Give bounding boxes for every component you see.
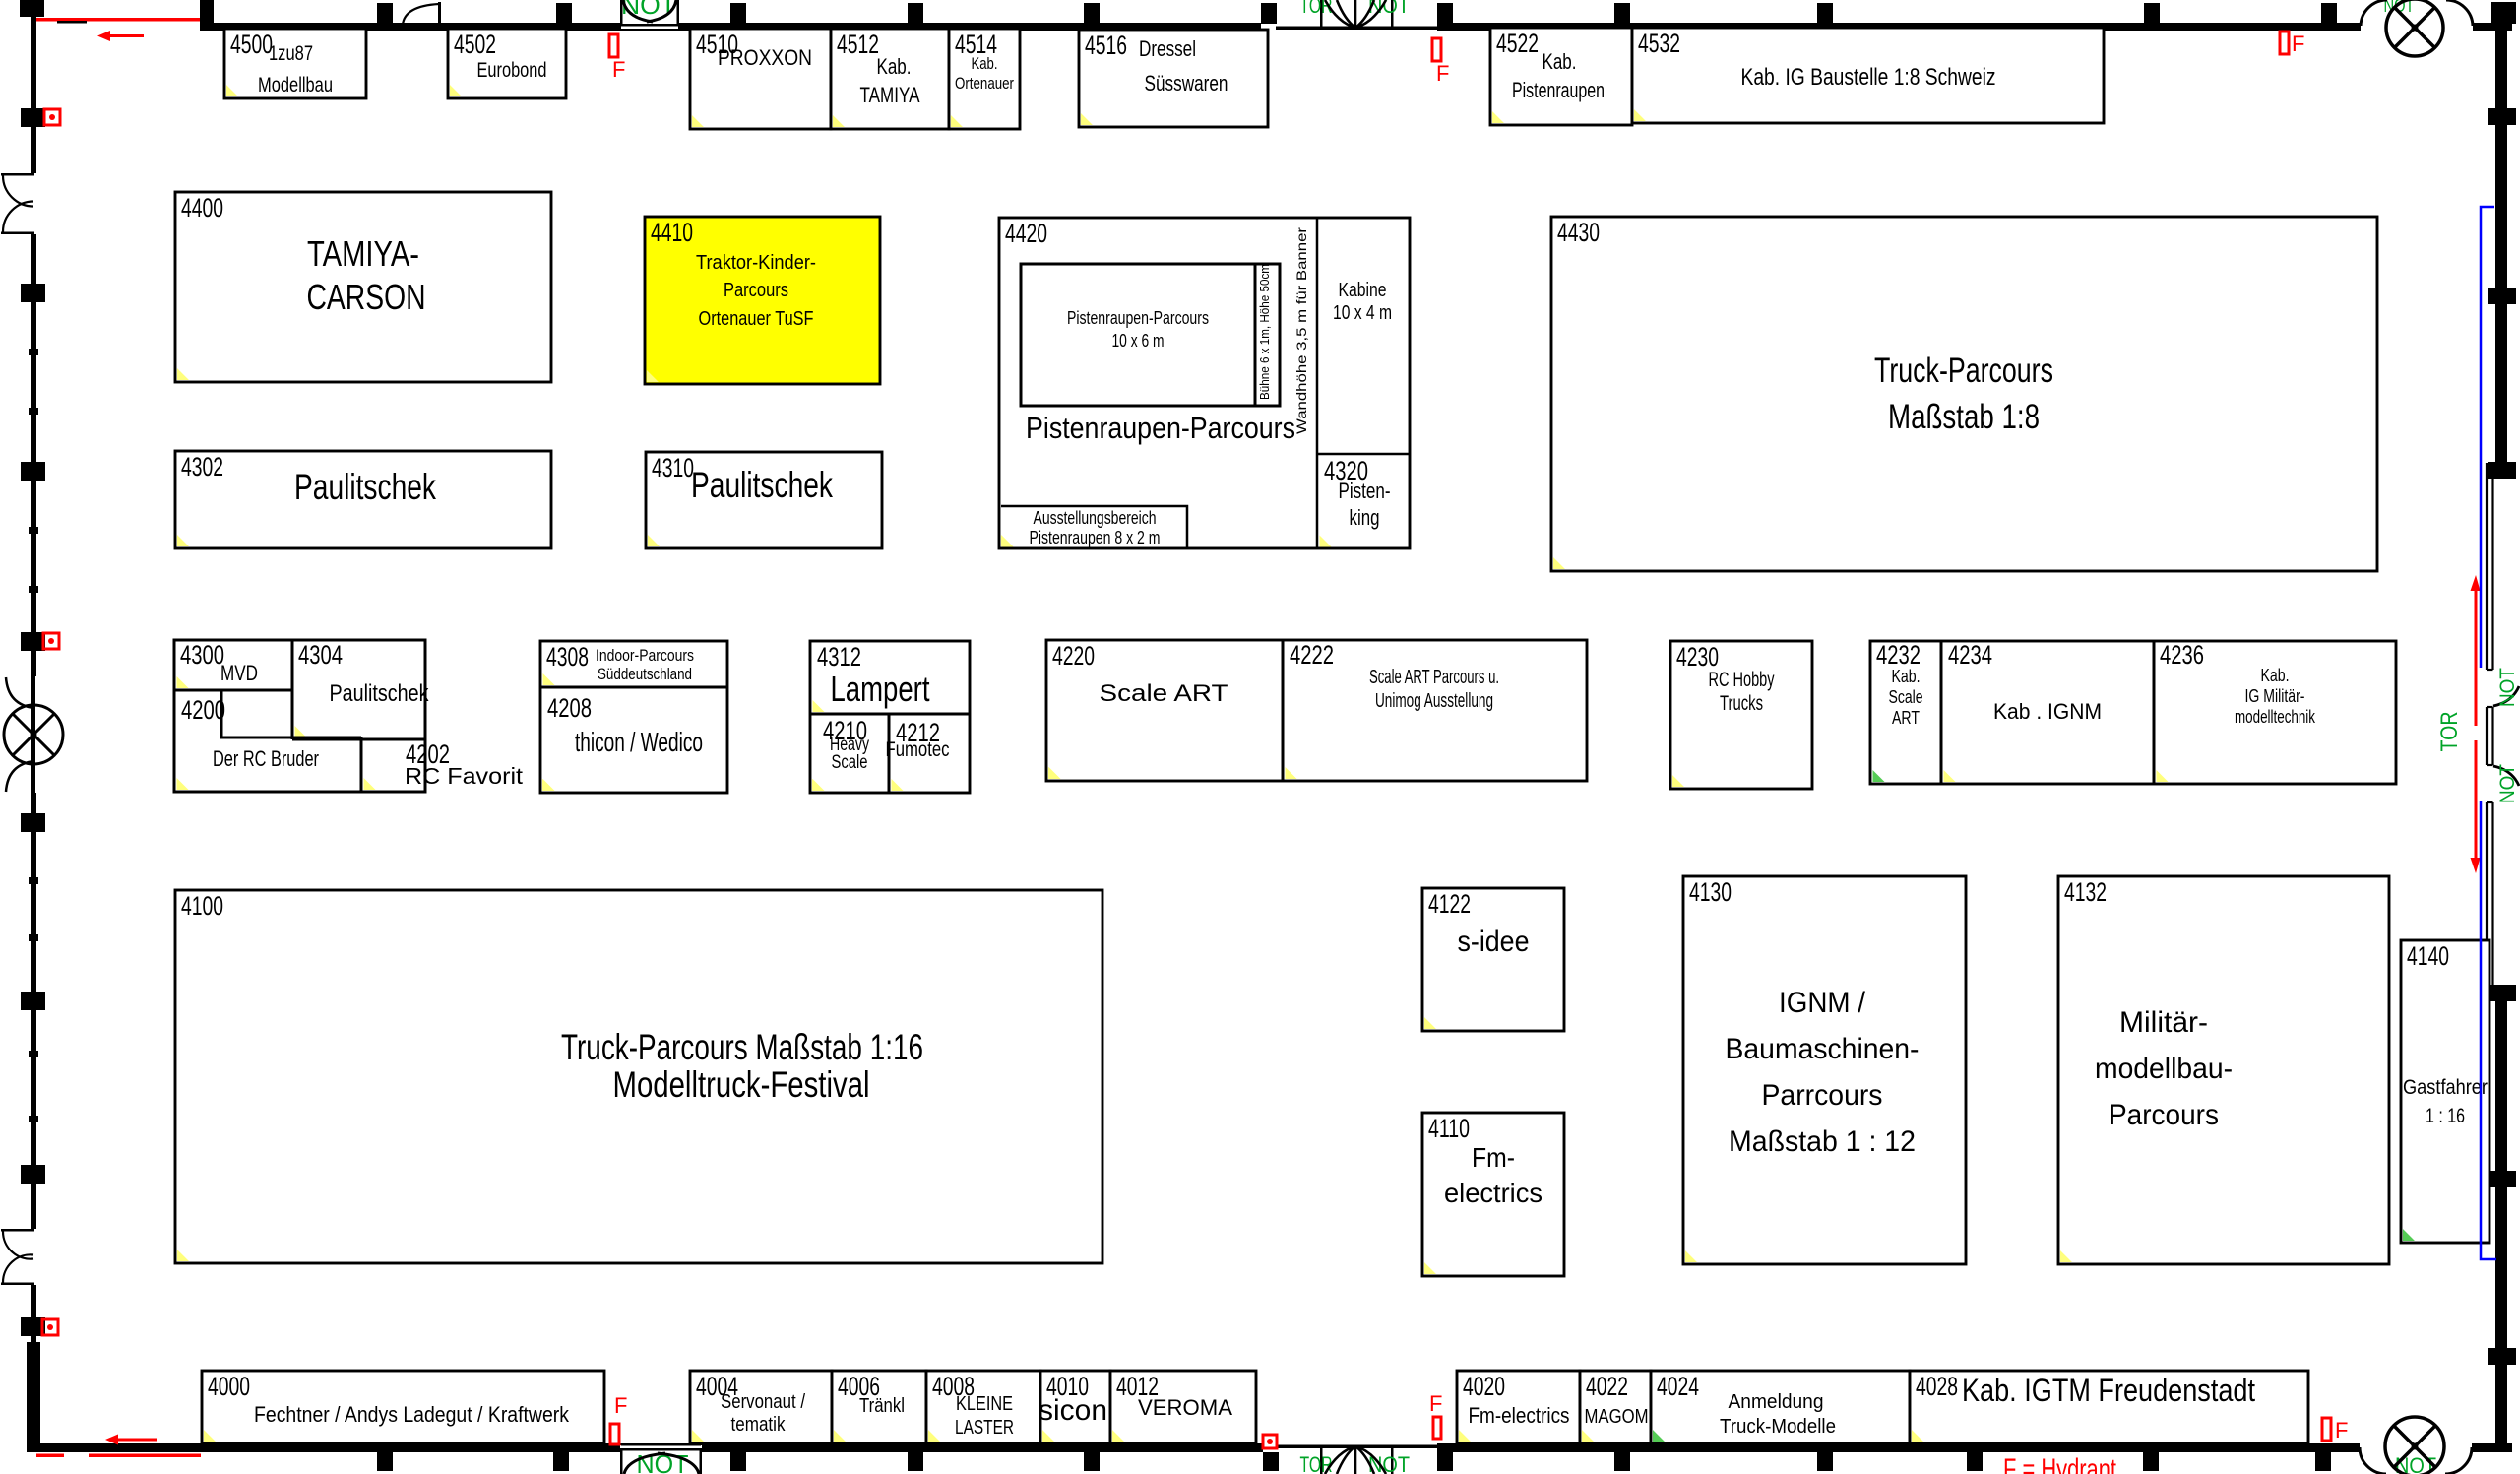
svg-text:4232: 4232 <box>1876 640 1921 670</box>
svg-text:IGNM /: IGNM / <box>1779 987 1866 1019</box>
svg-text:LASTER: LASTER <box>955 1417 1014 1439</box>
svg-text:4522: 4522 <box>1496 29 1539 58</box>
svg-text:king: king <box>1350 505 1380 530</box>
svg-text:4430: 4430 <box>1557 218 1600 247</box>
svg-text:4140: 4140 <box>2407 941 2449 971</box>
svg-text:4532: 4532 <box>1638 29 1680 58</box>
svg-text:Dressel: Dressel <box>1139 36 1196 61</box>
svg-text:Kab.: Kab. <box>877 54 912 79</box>
svg-text:Modellbau: Modellbau <box>258 74 333 96</box>
svg-text:Ortenauer TuSF: Ortenauer TuSF <box>699 308 814 330</box>
svg-text:4308: 4308 <box>546 642 589 672</box>
svg-text:4300: 4300 <box>180 640 224 670</box>
svg-text:Eurobond: Eurobond <box>477 59 547 82</box>
svg-text:4028: 4028 <box>1916 1372 1958 1401</box>
svg-text:Tränkl: Tränkl <box>859 1395 905 1417</box>
svg-text:4220: 4220 <box>1052 641 1095 671</box>
svg-text:4236: 4236 <box>2160 640 2204 670</box>
svg-text:4100: 4100 <box>181 891 223 921</box>
svg-text:Süsswaren: Süsswaren <box>1145 71 1228 96</box>
svg-text:4022: 4022 <box>1586 1372 1628 1401</box>
svg-text:NOT: NOT <box>2496 668 2519 707</box>
svg-text:PROXXON: PROXXON <box>718 45 812 70</box>
svg-text:Maßstab 1:8: Maßstab 1:8 <box>1888 398 2040 436</box>
svg-text:Pistenraupen: Pistenraupen <box>1512 78 1605 102</box>
svg-text:Scale: Scale <box>1889 687 1923 707</box>
svg-text:tematik: tematik <box>731 1414 787 1436</box>
svg-text:Kab.: Kab. <box>2261 666 2290 685</box>
svg-text:4304: 4304 <box>298 640 343 670</box>
svg-text:NOT: NOT <box>2496 764 2519 803</box>
svg-text:Parrcours: Parrcours <box>1762 1079 1883 1112</box>
svg-text:Fumotec: Fumotec <box>886 738 950 761</box>
svg-text:4512: 4512 <box>837 30 879 59</box>
svg-text:Paulitschek: Paulitschek <box>691 465 833 505</box>
svg-text:Militär-: Militär- <box>2119 1006 2208 1039</box>
svg-text:4502: 4502 <box>454 30 496 59</box>
svg-text:10 x 6 m: 10 x 6 m <box>1112 331 1165 351</box>
svg-text:1zu87: 1zu87 <box>269 42 313 65</box>
svg-text:MAGOM: MAGOM <box>1585 1406 1649 1428</box>
svg-text:sicon: sicon <box>1039 1394 1107 1427</box>
svg-text:Kab.: Kab. <box>972 54 998 73</box>
svg-text:F: F <box>1436 61 1449 86</box>
svg-text:Kab. IGTM Freudenstadt: Kab. IGTM Freudenstadt <box>1962 1373 2255 1408</box>
svg-text:4000: 4000 <box>208 1372 250 1401</box>
svg-text:Anmeldung: Anmeldung <box>1729 1391 1824 1413</box>
svg-text:Ortenauer: Ortenauer <box>955 74 1014 93</box>
svg-text:Bühne 6 x 1m, Höhe 50cm: Bühne 6 x 1m, Höhe 50cm <box>1257 264 1272 400</box>
svg-text:TAMIYA-: TAMIYA- <box>307 233 419 274</box>
svg-text:4410: 4410 <box>651 218 693 247</box>
svg-text:F: F <box>2292 32 2304 56</box>
svg-text:Trucks: Trucks <box>1720 692 1763 715</box>
svg-text:Pisten-: Pisten- <box>1339 479 1391 503</box>
svg-text:Kab. IG Baustelle 1:8 Schweiz: Kab. IG Baustelle 1:8 Schweiz <box>1741 64 1996 91</box>
svg-text:Truck-Modelle: Truck-Modelle <box>1720 1416 1836 1438</box>
svg-text:4208: 4208 <box>547 693 592 723</box>
svg-text:Kabine: Kabine <box>1339 280 1387 301</box>
svg-text:Pistenraupen-Parcours: Pistenraupen-Parcours <box>1067 308 1209 328</box>
svg-text:4200: 4200 <box>181 695 225 725</box>
svg-text:4110: 4110 <box>1428 1114 1470 1143</box>
svg-text:Fm-: Fm- <box>1472 1142 1515 1173</box>
svg-text:4310: 4310 <box>652 453 694 482</box>
svg-text:CARSON: CARSON <box>307 277 426 317</box>
svg-text:F: F <box>614 1393 627 1418</box>
svg-text:F: F <box>612 57 625 82</box>
svg-text:4122: 4122 <box>1428 889 1471 919</box>
svg-text:Truck-Parcours: Truck-Parcours <box>1874 352 2053 390</box>
svg-text:Scale ART Parcours u.: Scale ART Parcours u. <box>1369 667 1499 688</box>
svg-text:4130: 4130 <box>1689 877 1732 907</box>
svg-text:TOR: TOR <box>2436 712 2463 752</box>
svg-text:Scale ART: Scale ART <box>1100 680 1228 707</box>
svg-text:Truck-Parcours Maßstab 1:16: Truck-Parcours Maßstab 1:16 <box>561 1027 923 1067</box>
svg-text:modelltechnik: modelltechnik <box>2235 707 2316 727</box>
svg-text:NOT: NOT <box>1368 1452 1410 1474</box>
svg-text:Fechtner / Andys Ladegut / Kra: Fechtner / Andys Ladegut / Kraftwerk <box>254 1402 570 1427</box>
svg-text:MVD: MVD <box>220 661 258 685</box>
svg-text:4024: 4024 <box>1657 1372 1699 1401</box>
svg-text:Baumaschinen-: Baumaschinen- <box>1726 1033 1920 1065</box>
svg-text:4420: 4420 <box>1005 219 1047 248</box>
svg-text:Unimog Ausstellung: Unimog Ausstellung <box>1375 690 1493 712</box>
svg-text:Maßstab 1 : 12: Maßstab 1 : 12 <box>1729 1125 1916 1158</box>
svg-text:RC Favorit: RC Favorit <box>405 763 524 789</box>
svg-text:Kab.: Kab. <box>1543 49 1577 74</box>
svg-text:4132: 4132 <box>2064 877 2107 907</box>
svg-text:Traktor-Kinder-: Traktor-Kinder- <box>696 252 816 274</box>
svg-text:Wandhöhe 3,5 m für Banner: Wandhöhe 3,5 m für Banner <box>1294 226 1309 434</box>
svg-text:F: F <box>2335 1418 2348 1442</box>
svg-text:4234: 4234 <box>1948 640 1992 670</box>
svg-text:Kab.: Kab. <box>1892 667 1921 686</box>
svg-text:IG Militär-: IG Militär- <box>2245 686 2305 706</box>
svg-text:4302: 4302 <box>181 452 223 481</box>
svg-text:4312: 4312 <box>817 642 861 672</box>
svg-text:4020: 4020 <box>1463 1372 1505 1401</box>
svg-text:4400: 4400 <box>181 193 223 223</box>
svg-text:1 : 16: 1 : 16 <box>2425 1105 2465 1127</box>
svg-text:Süddeutschland: Süddeutschland <box>598 665 692 683</box>
svg-text:ART: ART <box>1892 708 1920 728</box>
svg-text:Der RC Bruder: Der RC Bruder <box>213 746 319 771</box>
svg-text:Ausstellungsbereich: Ausstellungsbereich <box>1034 508 1157 528</box>
svg-text:Indoor-Parcours: Indoor-Parcours <box>596 646 694 665</box>
svg-text:Gastfahrer: Gastfahrer <box>2403 1076 2488 1099</box>
svg-text:thicon / Wedico: thicon / Wedico <box>575 727 703 757</box>
svg-text:Servonaut /: Servonaut / <box>721 1391 805 1413</box>
svg-text:Parcours: Parcours <box>724 280 788 301</box>
svg-text:Pistenraupen 8 x 2 m: Pistenraupen 8 x 2 m <box>1030 528 1161 547</box>
svg-text:s-idee: s-idee <box>1458 926 1530 958</box>
svg-text:Paulitschek: Paulitschek <box>294 467 436 507</box>
svg-text:Scale: Scale <box>832 752 868 773</box>
svg-text:KLEINE: KLEINE <box>956 1393 1013 1415</box>
svg-text:Parcours: Parcours <box>2109 1099 2219 1131</box>
svg-text:modellbau-: modellbau- <box>2095 1053 2233 1085</box>
svg-text:4500: 4500 <box>230 30 273 59</box>
svg-text:NOT: NOT <box>621 0 676 20</box>
svg-text:4230: 4230 <box>1676 642 1719 672</box>
svg-text:Kab . IGNM: Kab . IGNM <box>1993 699 2102 724</box>
svg-text:Fm-electrics: Fm-electrics <box>1469 1403 1570 1428</box>
svg-text:VEROMA: VEROMA <box>1138 1395 1232 1420</box>
svg-text:RC Hobby: RC Hobby <box>1709 669 1775 691</box>
svg-text:4222: 4222 <box>1290 640 1334 670</box>
svg-text:4516: 4516 <box>1085 31 1127 60</box>
svg-text:F = Hydrant: F = Hydrant <box>2003 1453 2116 1474</box>
svg-text:10 x 4 m: 10 x 4 m <box>1333 302 1392 324</box>
svg-text:electrics: electrics <box>1444 1178 1543 1208</box>
svg-text:Pistenraupen-Parcours: Pistenraupen-Parcours <box>1026 411 1295 445</box>
svg-text:TAMIYA: TAMIYA <box>860 83 920 107</box>
svg-text:Modelltruck-Festival: Modelltruck-Festival <box>613 1064 870 1105</box>
svg-text:Paulitschek: Paulitschek <box>330 680 430 707</box>
svg-text:Lampert: Lampert <box>831 669 930 709</box>
svg-text:F: F <box>1429 1391 1442 1416</box>
